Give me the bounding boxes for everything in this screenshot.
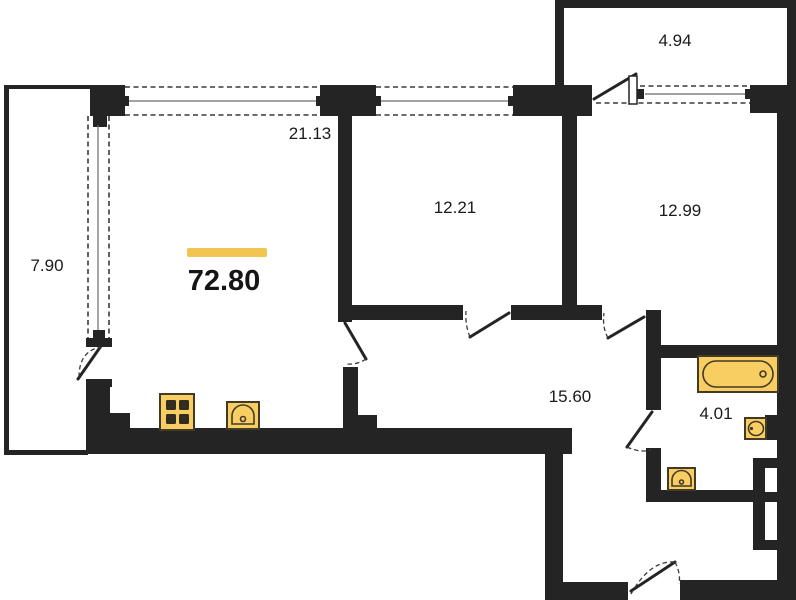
wall-bathroom-bottom bbox=[652, 490, 753, 502]
floor-plan: 72.80 7.90 21.13 12.21 12.99 4.94 15.60 … bbox=[0, 0, 796, 600]
room-label-bedroom2: 12.99 bbox=[659, 201, 702, 220]
room-label-living: 21.13 bbox=[289, 124, 332, 143]
wall-bedroom1-hall-left bbox=[338, 305, 463, 320]
wall-loggia-right bbox=[787, 0, 796, 108]
stove-icon bbox=[160, 394, 194, 430]
wall-balcony-thin-bottom bbox=[4, 450, 88, 455]
washbasin-icon bbox=[668, 468, 695, 490]
total-area-accent-bar bbox=[187, 248, 267, 257]
room-label-loggia: 4.94 bbox=[658, 31, 691, 50]
wall-living-bedroom1 bbox=[338, 116, 352, 322]
wall-pier-top-left bbox=[90, 85, 125, 116]
room-label-bathroom: 4.01 bbox=[699, 404, 732, 423]
sink-icon bbox=[745, 418, 766, 439]
kitchen-sink-icon bbox=[227, 402, 259, 429]
total-area-label: 72.80 bbox=[188, 265, 261, 297]
room-label-bedroom1: 12.21 bbox=[434, 198, 477, 217]
wall-balcony-sill-top bbox=[86, 338, 112, 347]
wall-bathroom-left-upper bbox=[646, 310, 661, 410]
wall-step-nub bbox=[358, 415, 377, 430]
wall-shaft-top bbox=[753, 458, 778, 468]
floor-plan-svg: 72.80 7.90 21.13 12.21 12.99 4.94 15.60 … bbox=[0, 0, 796, 600]
wall-pier-top-mid bbox=[320, 85, 376, 116]
wall-shaft-bottom bbox=[753, 540, 778, 550]
wall-balcony-thin-left bbox=[4, 85, 9, 455]
bathtub-icon bbox=[698, 356, 778, 392]
wall-bottom-entry-right bbox=[680, 580, 796, 600]
wall-bottom-entry-left bbox=[545, 582, 628, 600]
wall-shaft-mid bbox=[753, 492, 778, 502]
wall-pier-top-right bbox=[513, 85, 592, 116]
wall-loggia-top bbox=[555, 0, 796, 8]
wall-balcony-sill-bottom bbox=[86, 379, 112, 387]
wall-loggia-left bbox=[555, 0, 564, 90]
wall-balcony-thin-top bbox=[4, 85, 90, 89]
wall-bedroom1-hall-right bbox=[511, 305, 602, 320]
wall-kitchen-lower bbox=[343, 367, 358, 430]
wall-vestibule-left bbox=[545, 454, 563, 600]
room-label-balcony: 7.90 bbox=[30, 256, 63, 275]
wall-bottom-main bbox=[86, 428, 572, 454]
wall-bedroom1-bedroom2 bbox=[562, 116, 577, 310]
room-label-hallway: 15.60 bbox=[549, 387, 592, 406]
wall-shaft-vertical bbox=[753, 458, 765, 550]
wall-nub-balcony bbox=[93, 116, 107, 127]
